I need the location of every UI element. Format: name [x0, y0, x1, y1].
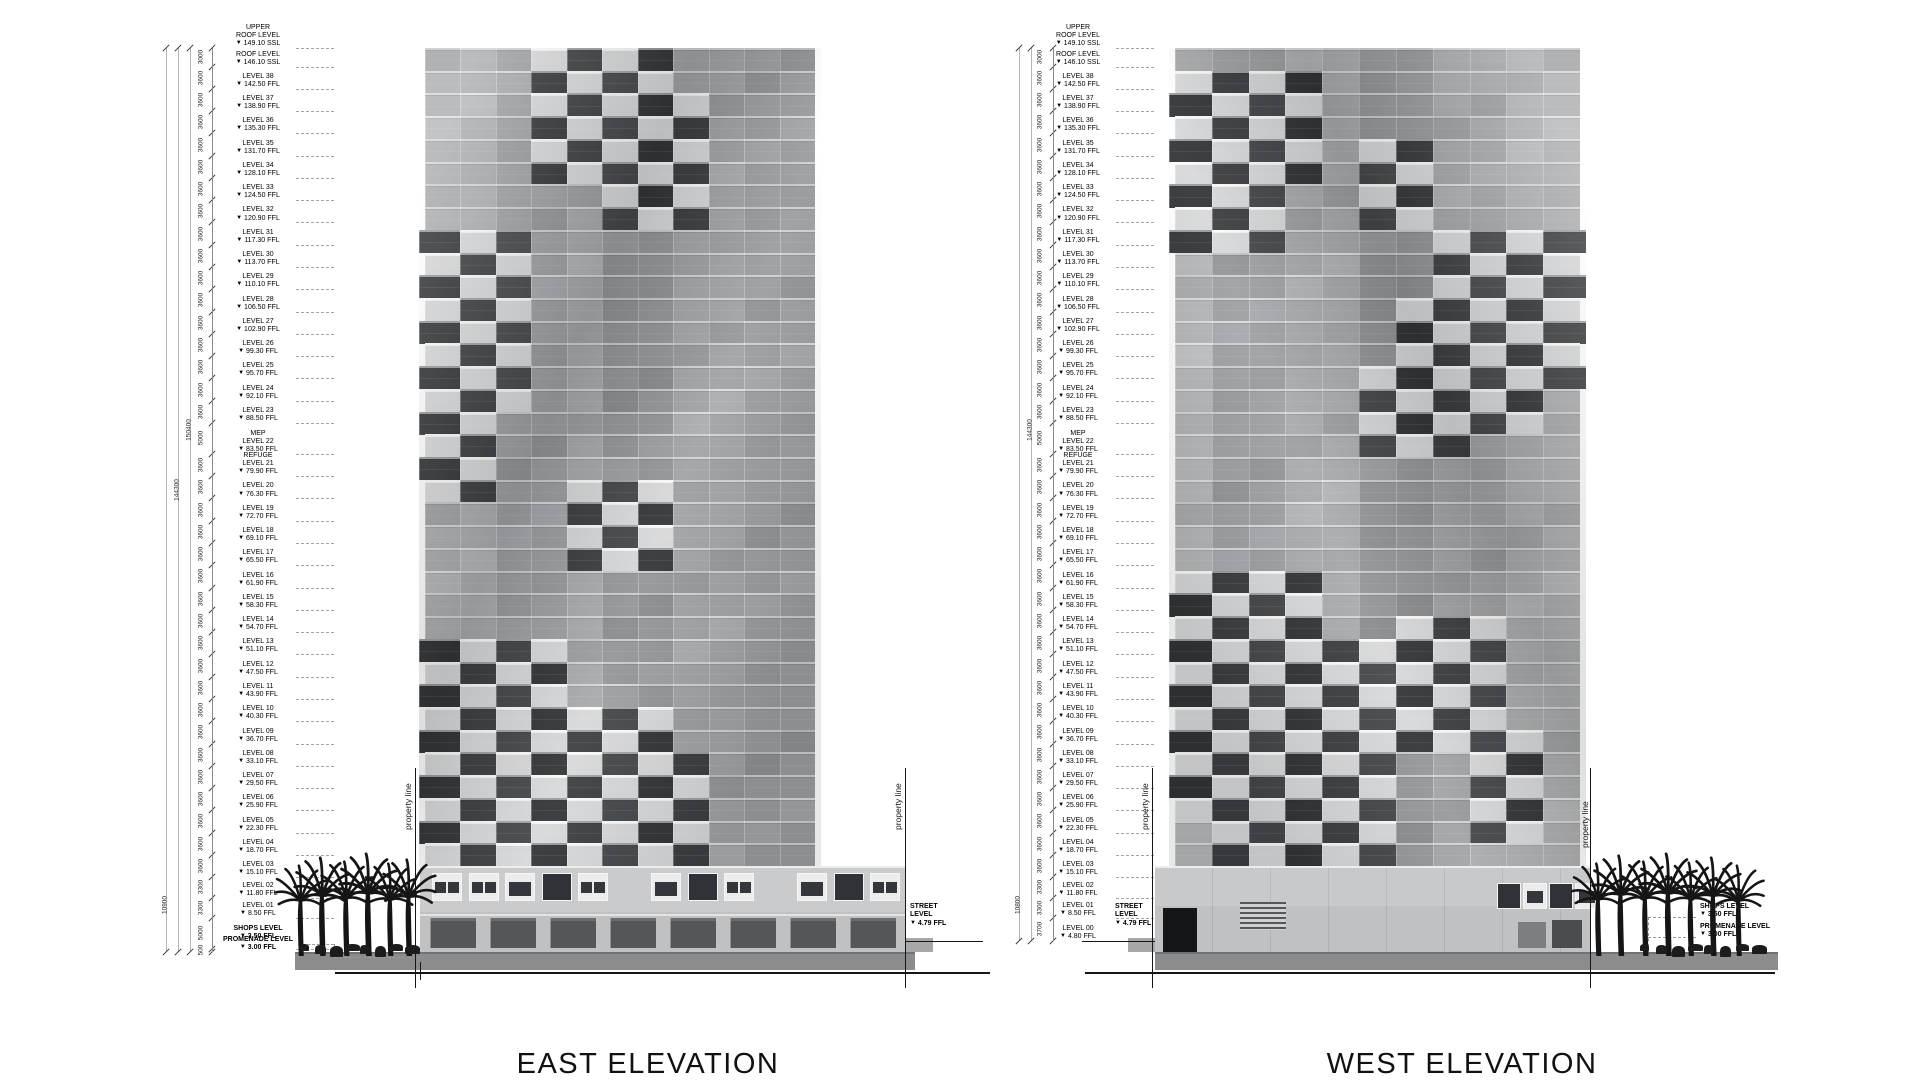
facade-cell	[419, 775, 461, 798]
facade-cell	[425, 593, 461, 616]
facade-cell	[567, 434, 603, 457]
property-line-label: property line	[403, 783, 413, 830]
facade-cell	[1506, 71, 1543, 94]
facade-cell	[531, 480, 567, 503]
level-leader	[1116, 401, 1154, 402]
facade-cell	[1433, 139, 1470, 162]
facade-cell	[1212, 730, 1249, 753]
dim-value: 5000	[198, 926, 205, 940]
facade-cell	[1359, 389, 1396, 412]
level-leader	[296, 521, 334, 522]
facade-cell	[1169, 593, 1212, 616]
facade-cell	[1470, 775, 1507, 798]
facade-cell	[1433, 616, 1470, 639]
facade-cell	[1249, 389, 1286, 412]
level-leader	[1116, 378, 1154, 379]
facade-cell	[1543, 593, 1580, 616]
dim-value: 3600	[198, 293, 205, 307]
level-leader	[296, 721, 334, 722]
facade-cell	[638, 343, 674, 366]
facade-cell	[709, 593, 745, 616]
facade-cell	[1249, 343, 1286, 366]
facade-cell	[709, 389, 745, 412]
facade-cell	[425, 525, 461, 548]
facade-cell	[425, 548, 461, 571]
facade-cell	[1322, 162, 1359, 185]
facade-cell	[1212, 321, 1249, 344]
facade-cell	[567, 593, 603, 616]
facade-cell	[638, 71, 674, 94]
facade-cell	[1285, 366, 1322, 389]
dim-tick	[162, 948, 169, 955]
dim-value: 3600	[1037, 480, 1044, 494]
level-label: LEVEL 38▼ 142.50 FFL	[222, 73, 294, 89]
level-label: LEVEL 06▼ 25.90 FFL	[222, 794, 294, 810]
facade-cell	[1322, 139, 1359, 162]
dim-value: 3600	[1037, 703, 1044, 717]
facade-cell	[1175, 502, 1212, 525]
facade-cell	[1359, 843, 1396, 866]
facade-cell	[496, 502, 532, 525]
facade-cell	[1506, 434, 1543, 457]
facade-cell	[1506, 207, 1543, 230]
facade-cell	[780, 321, 816, 344]
facade-cell	[1212, 298, 1249, 321]
facade-cell	[1396, 752, 1433, 775]
facade-cell	[425, 162, 461, 185]
facade-cell	[1212, 343, 1249, 366]
facade-cell	[709, 71, 745, 94]
facade-cell	[531, 389, 567, 412]
facade-cell	[673, 525, 709, 548]
facade-cell	[1249, 230, 1286, 253]
facade-cell	[602, 321, 638, 344]
facade-cell	[567, 662, 603, 685]
facade-cell	[1359, 343, 1396, 366]
level-label: LEVEL 28▼ 106.50 FFL	[222, 296, 294, 312]
facade-cell	[673, 366, 709, 389]
facade-cell	[567, 412, 603, 435]
facade-cell	[744, 525, 780, 548]
dim-value: 3600	[1037, 115, 1044, 129]
facade-cell	[744, 366, 780, 389]
level-label: UPPERROOF LEVEL▼ 149.10 SSL	[222, 24, 294, 48]
facade-cell	[1285, 275, 1322, 298]
facade-cell	[460, 162, 496, 185]
facade-cell	[425, 139, 461, 162]
facade-cell	[460, 593, 496, 616]
facade-cell	[744, 707, 780, 730]
facade-cell	[1169, 93, 1212, 116]
facade-cell	[1396, 434, 1433, 457]
facade-cell	[638, 752, 674, 775]
facade-cell	[1322, 434, 1359, 457]
facade-cell	[744, 798, 780, 821]
west-street-line	[1082, 941, 1155, 942]
facade-cell	[1322, 707, 1359, 730]
level-label: LEVEL 35▼ 131.70 FFL	[222, 140, 294, 156]
facade-cell	[1322, 525, 1359, 548]
facade-cell	[1433, 230, 1470, 253]
facade-cell	[1175, 321, 1212, 344]
facade-cell	[638, 775, 674, 798]
facade-cell	[1543, 548, 1580, 571]
dim-value: 3600	[198, 658, 205, 672]
facade-cell	[1285, 639, 1322, 662]
facade-cell	[1285, 71, 1322, 94]
west-elevation-title: WEST ELEVATION	[1327, 1048, 1598, 1080]
facade-cell	[1359, 457, 1396, 480]
facade-cell	[1470, 184, 1507, 207]
shrub	[1720, 946, 1731, 957]
dim-value: 3600	[198, 681, 205, 695]
facade-cell	[673, 616, 709, 639]
facade-cell	[419, 230, 461, 253]
elevation-sheet: EAST ELEVATION WEST ELEVATION promenade …	[0, 0, 1920, 1080]
facade-cell	[460, 48, 496, 71]
facade-cell	[1543, 93, 1580, 116]
level-leader	[1116, 334, 1154, 335]
facade-cell	[1506, 775, 1543, 798]
level-leader	[296, 833, 334, 834]
facade-cell	[1212, 571, 1249, 594]
dim-tick	[1015, 937, 1022, 944]
facade-cell	[1249, 843, 1286, 866]
facade-cell	[673, 93, 709, 116]
level-leader	[1116, 454, 1154, 455]
west-podium-doorway	[1163, 908, 1197, 952]
facade-cell	[531, 71, 567, 94]
facade-cell	[780, 71, 816, 94]
facade-cell	[638, 821, 674, 844]
facade-cell	[1359, 752, 1396, 775]
facade-cell	[780, 548, 816, 571]
facade-cell	[567, 480, 603, 503]
facade-cell	[673, 480, 709, 503]
facade-cell	[780, 639, 816, 662]
facade-cell	[1169, 184, 1212, 207]
dim-value: 3600	[1037, 837, 1044, 851]
level-leader	[1116, 632, 1154, 633]
level-label: LEVEL 09▼ 36.70 FFL	[222, 728, 294, 744]
facade-cell	[1470, 616, 1507, 639]
facade-cell	[1470, 162, 1507, 185]
level-leader	[1116, 877, 1154, 878]
level-leader	[1116, 610, 1154, 611]
facade-cell	[1322, 480, 1359, 503]
facade-cell	[1169, 139, 1212, 162]
facade-cell	[1470, 730, 1507, 753]
facade-cell	[496, 389, 532, 412]
facade-cell	[602, 184, 638, 207]
facade-cell	[1543, 253, 1580, 276]
facade-cell	[567, 207, 603, 230]
facade-cell	[638, 798, 674, 821]
facade-cell	[602, 775, 638, 798]
facade-cell	[780, 343, 816, 366]
facade-cell	[1506, 457, 1543, 480]
facade-cell	[496, 184, 532, 207]
level-label: MEPLEVEL 22▼ 83.50 FFL	[222, 430, 294, 454]
facade-cell	[602, 639, 638, 662]
facade-cell	[496, 639, 532, 662]
facade-cell	[1396, 684, 1433, 707]
facade-cell	[1175, 253, 1212, 276]
facade-cell	[1322, 548, 1359, 571]
level-leader	[296, 632, 334, 633]
facade-cell	[602, 525, 638, 548]
facade-cell	[1506, 184, 1543, 207]
facade-cell	[496, 162, 532, 185]
facade-cell	[1470, 139, 1507, 162]
facade-cell	[531, 662, 567, 685]
facade-cell	[1470, 298, 1507, 321]
facade-cell	[460, 93, 496, 116]
facade-cell	[1433, 571, 1470, 594]
facade-cell	[1543, 184, 1580, 207]
level-label: LEVEL 16▼ 61.90 FFL	[222, 572, 294, 588]
facade-cell	[1506, 275, 1543, 298]
facade-cell	[1433, 412, 1470, 435]
facade-cell	[1433, 548, 1470, 571]
facade-cell	[1543, 571, 1580, 594]
facade-cell	[780, 502, 816, 525]
facade-cell	[460, 139, 496, 162]
facade-cell	[1169, 684, 1212, 707]
dim-value: 3600	[198, 115, 205, 129]
facade-cell	[1212, 48, 1249, 71]
facade-cell	[1212, 843, 1249, 866]
facade-cell	[709, 184, 745, 207]
facade-cell	[673, 343, 709, 366]
facade-cell	[1470, 275, 1507, 298]
facade-cell	[496, 821, 532, 844]
level-leader	[1116, 654, 1154, 655]
facade-cell	[1470, 821, 1507, 844]
facade-cell	[1433, 207, 1470, 230]
facade-cell	[1396, 207, 1433, 230]
dim-value: 3600	[198, 271, 205, 285]
facade-cell	[1470, 752, 1507, 775]
facade-cell	[780, 253, 816, 276]
facade-cell	[1322, 298, 1359, 321]
facade-cell	[1433, 821, 1470, 844]
level-leader	[296, 454, 334, 455]
facade-cell	[567, 343, 603, 366]
facade-cell	[1543, 639, 1580, 662]
facade-cell	[567, 752, 603, 775]
facade-cell	[1212, 162, 1249, 185]
level-leader	[296, 156, 334, 157]
level-label: LEVEL 34▼ 128.10 FFL	[222, 162, 294, 178]
facade-cell	[673, 639, 709, 662]
facade-cell	[531, 321, 567, 344]
level-leader	[296, 588, 334, 589]
facade-cell	[709, 139, 745, 162]
dim-value: 3600	[1037, 859, 1044, 873]
facade-cell	[780, 366, 816, 389]
dim-value: 3600	[198, 382, 205, 396]
facade-cell	[673, 184, 709, 207]
facade-cell	[1249, 116, 1286, 139]
facade-cell	[1322, 730, 1359, 753]
facade-cell	[1470, 662, 1507, 685]
facade-cell	[1212, 139, 1249, 162]
facade-cell	[638, 389, 674, 412]
facade-cell	[1212, 389, 1249, 412]
facade-cell	[1212, 775, 1249, 798]
level-leader	[1116, 498, 1154, 499]
facade-cell	[1543, 502, 1580, 525]
level-leader	[296, 744, 334, 745]
facade-cell	[496, 93, 532, 116]
facade-cell	[1175, 116, 1212, 139]
facade-cell	[602, 434, 638, 457]
facade-cell	[602, 139, 638, 162]
facade-cell	[531, 253, 567, 276]
facade-cell	[1285, 752, 1322, 775]
facade-cell	[1433, 525, 1470, 548]
level-leader	[1116, 289, 1154, 290]
facade-cell	[780, 752, 816, 775]
outer-dim-line	[1019, 48, 1020, 941]
facade-cell	[1396, 71, 1433, 94]
level-leader	[1116, 699, 1154, 700]
facade-cell	[1249, 275, 1286, 298]
level-leader	[1116, 133, 1154, 134]
level-label: LEVEL 33▼ 124.50 FFL	[222, 184, 294, 200]
facade-cell	[709, 730, 745, 753]
level-leader	[296, 788, 334, 789]
facade-cell	[780, 298, 816, 321]
facade-cell	[1543, 116, 1580, 139]
level-leader	[1116, 245, 1154, 246]
facade-cell	[709, 366, 745, 389]
facade-cell	[1322, 275, 1359, 298]
facade-cell	[638, 480, 674, 503]
facade-cell	[1359, 184, 1396, 207]
east-street-line	[905, 941, 983, 942]
dim-value: 3300	[198, 901, 205, 915]
shrub	[1672, 946, 1685, 957]
facade-cell	[460, 502, 496, 525]
dim-value: 3600	[198, 182, 205, 196]
facade-cell	[1359, 798, 1396, 821]
outer-dim-value: 150400	[186, 419, 193, 441]
facade-cell	[1359, 616, 1396, 639]
facade-cell	[460, 571, 496, 594]
facade-cell	[744, 502, 780, 525]
facade-cell	[460, 525, 496, 548]
dim-tick	[174, 948, 181, 955]
property-line-west-left	[1152, 768, 1153, 988]
level-leader	[296, 610, 334, 611]
dim-value: 3600	[1037, 502, 1044, 516]
outer-dim-line	[190, 48, 191, 952]
facade-cell	[1359, 593, 1396, 616]
dim-value: 3600	[198, 547, 205, 561]
facade-cell	[1506, 821, 1543, 844]
facade-cell	[1470, 457, 1507, 480]
facade-cell	[1249, 412, 1286, 435]
facade-cell	[780, 684, 816, 707]
facade-cell	[1506, 162, 1543, 185]
dim-value: 3600	[198, 703, 205, 717]
facade-cell	[1175, 366, 1212, 389]
facade-cell	[1359, 275, 1396, 298]
facade-cell	[1396, 162, 1433, 185]
facade-cell	[1396, 230, 1433, 253]
facade-cell	[567, 230, 603, 253]
facade-cell	[638, 707, 674, 730]
facade-cell	[531, 525, 567, 548]
facade-cell	[673, 434, 709, 457]
dim-value: 3600	[198, 249, 205, 263]
facade-cell	[1506, 798, 1543, 821]
facade-cell	[567, 184, 603, 207]
dim-value: 5000	[1037, 431, 1044, 445]
dim-value: 3700	[1037, 922, 1044, 936]
facade-cell	[709, 571, 745, 594]
facade-cell	[744, 71, 780, 94]
facade-cell	[1396, 548, 1433, 571]
facade-cell	[567, 821, 603, 844]
facade-cell	[780, 571, 816, 594]
facade-cell	[531, 162, 567, 185]
facade-cell	[673, 207, 709, 230]
facade-cell	[780, 730, 816, 753]
dim-value: 3000	[1037, 50, 1044, 64]
level-leader	[1116, 200, 1154, 201]
facade-cell	[673, 253, 709, 276]
facade-cell	[744, 207, 780, 230]
facade-cell	[496, 593, 532, 616]
shrub	[1640, 944, 1649, 951]
facade-cell	[1396, 366, 1433, 389]
facade-cell	[673, 571, 709, 594]
facade-cell	[744, 775, 780, 798]
facade-cell	[425, 798, 461, 821]
facade-cell	[638, 230, 674, 253]
facade-cell	[1396, 798, 1433, 821]
facade-cell	[419, 684, 461, 707]
dim-value: 3600	[1037, 226, 1044, 240]
facade-cell	[1470, 434, 1507, 457]
level-leader	[1116, 521, 1154, 522]
facade-cell	[602, 275, 638, 298]
facade-cell	[780, 593, 816, 616]
facade-cell	[1543, 707, 1580, 730]
facade-cell	[1175, 616, 1212, 639]
facade-cell	[744, 48, 780, 71]
dim-value: 3600	[1037, 770, 1044, 784]
facade-cell	[780, 412, 816, 435]
facade-cell	[1470, 707, 1507, 730]
facade-cell	[496, 48, 532, 71]
facade-cell	[1359, 639, 1396, 662]
facade-cell	[1212, 207, 1249, 230]
dim-value: 3600	[198, 814, 205, 828]
level-leader	[1116, 48, 1154, 49]
level-label: LEVEL 20▼ 76.30 FFL	[222, 482, 294, 498]
facade-cell	[709, 684, 745, 707]
facade-cell	[1506, 548, 1543, 571]
facade-cell	[460, 843, 496, 866]
west-podium-louvers	[1240, 902, 1286, 930]
level-label: LEVEL 11▼ 43.90 FFL	[222, 683, 294, 699]
facade-cell	[673, 48, 709, 71]
facade-cell	[1470, 525, 1507, 548]
